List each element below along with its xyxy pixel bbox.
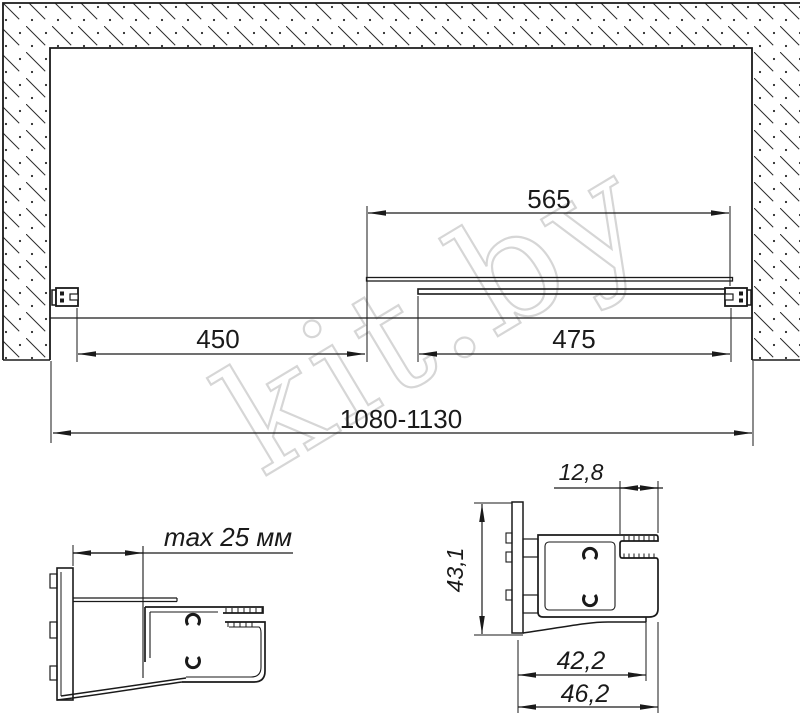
detail-left-serration — [226, 608, 262, 627]
detail-right-serration — [624, 536, 654, 558]
dim-label-opening-width: 450 — [196, 324, 239, 354]
detail-right-profile-inner — [545, 542, 615, 610]
detail-right-boss-top — [584, 548, 597, 559]
detail-right-boss-bottom — [584, 595, 597, 606]
detail-right-wall-strip — [512, 502, 523, 633]
detail-left-boss-bottom — [187, 657, 200, 668]
wall-left-hatch — [3, 48, 50, 360]
detail-left-wall-strip — [57, 568, 73, 700]
dim-label-inner-width: 42,2 — [557, 647, 606, 675]
detail-right-profile-outline — [538, 535, 658, 617]
wall-top-hatch — [3, 3, 800, 48]
dim-label-adjustment: max 25 мм — [164, 522, 292, 552]
dim-label-profile-height: 43,1 — [442, 548, 468, 593]
detail-right-skirt — [523, 617, 646, 633]
dim-label-outer-width: 46,2 — [561, 680, 610, 708]
dim-label-slot-depth: 12,8 — [559, 459, 604, 485]
wall-bracket-right — [725, 288, 751, 306]
detail-right — [474, 481, 663, 713]
drawing-sheet: kit.by — [0, 0, 800, 717]
dim-label-total-width: 1080-1130 — [340, 404, 462, 434]
wall-bracket-left — [52, 288, 78, 306]
detail-left-profile-outline — [145, 607, 265, 682]
detail-left-boss-top — [187, 614, 200, 625]
detail-right-tab-top — [523, 539, 538, 557]
detail-left-skirt — [57, 678, 186, 700]
wall-right-hatch — [752, 48, 800, 360]
technical-drawing: kit.by — [0, 0, 800, 717]
detail-right-tab-bottom — [523, 595, 538, 613]
detail-left — [50, 545, 293, 700]
dim-label-door-width: 475 — [552, 324, 595, 354]
dim-label-panel-width: 565 — [527, 184, 570, 214]
watermark: kit.by — [191, 121, 678, 509]
detail-left-flange — [73, 598, 177, 602]
